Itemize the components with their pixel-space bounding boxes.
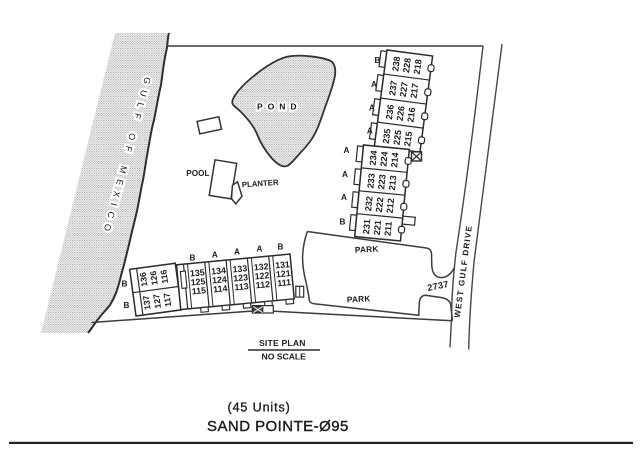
svg-text:115: 115	[191, 285, 206, 296]
svg-text:A: A	[369, 103, 375, 112]
svg-text:A: A	[341, 193, 347, 202]
svg-text:B: B	[124, 301, 130, 310]
svg-text:B: B	[340, 218, 346, 227]
svg-text:234: 234	[368, 150, 379, 166]
svg-text:113: 113	[234, 281, 249, 292]
svg-text:232: 232	[363, 196, 374, 212]
svg-text:222: 222	[374, 197, 385, 213]
svg-text:216: 216	[405, 107, 417, 123]
svg-text:SAND POINTE-Ø95: SAND POINTE-Ø95	[207, 418, 349, 435]
svg-text:B: B	[190, 254, 196, 263]
svg-text:PARK: PARK	[347, 293, 371, 304]
svg-text:SITE PLAN: SITE PLAN	[259, 338, 306, 348]
svg-text:A: A	[367, 127, 373, 136]
svg-text:B: B	[122, 280, 128, 289]
svg-text:B: B	[375, 56, 381, 65]
svg-text:PARK: PARK	[355, 244, 379, 255]
svg-text:231: 231	[361, 219, 372, 235]
svg-text:213: 213	[387, 175, 398, 191]
svg-text:116: 116	[158, 269, 170, 284]
svg-text:A: A	[234, 248, 240, 257]
svg-text:217: 217	[409, 83, 421, 99]
svg-text:2737: 2737	[426, 279, 449, 293]
svg-text:A: A	[344, 146, 350, 155]
svg-text:(45 Units): (45 Units)	[228, 401, 291, 415]
svg-text:211: 211	[383, 221, 394, 236]
svg-text:112: 112	[255, 279, 270, 290]
svg-text:224: 224	[378, 151, 389, 167]
svg-text:A: A	[212, 251, 218, 260]
svg-text:A: A	[257, 245, 263, 254]
svg-text:B: B	[278, 243, 284, 252]
svg-text:POND: POND	[257, 102, 301, 112]
svg-text:214: 214	[389, 152, 400, 168]
svg-text:117: 117	[161, 292, 173, 307]
svg-text:111: 111	[277, 277, 292, 288]
svg-text:218: 218	[412, 59, 424, 75]
svg-text:233: 233	[365, 173, 376, 189]
svg-text:114: 114	[213, 283, 228, 294]
svg-text:221: 221	[372, 220, 383, 236]
svg-text:215: 215	[402, 131, 414, 147]
svg-text:PLANTER: PLANTER	[242, 178, 280, 190]
svg-text:A: A	[371, 80, 377, 89]
svg-text:A: A	[342, 170, 348, 179]
svg-text:223: 223	[376, 174, 387, 190]
svg-text:212: 212	[385, 198, 396, 214]
svg-text:NO SCALE: NO SCALE	[262, 352, 307, 362]
svg-text:POOL: POOL	[186, 169, 209, 178]
